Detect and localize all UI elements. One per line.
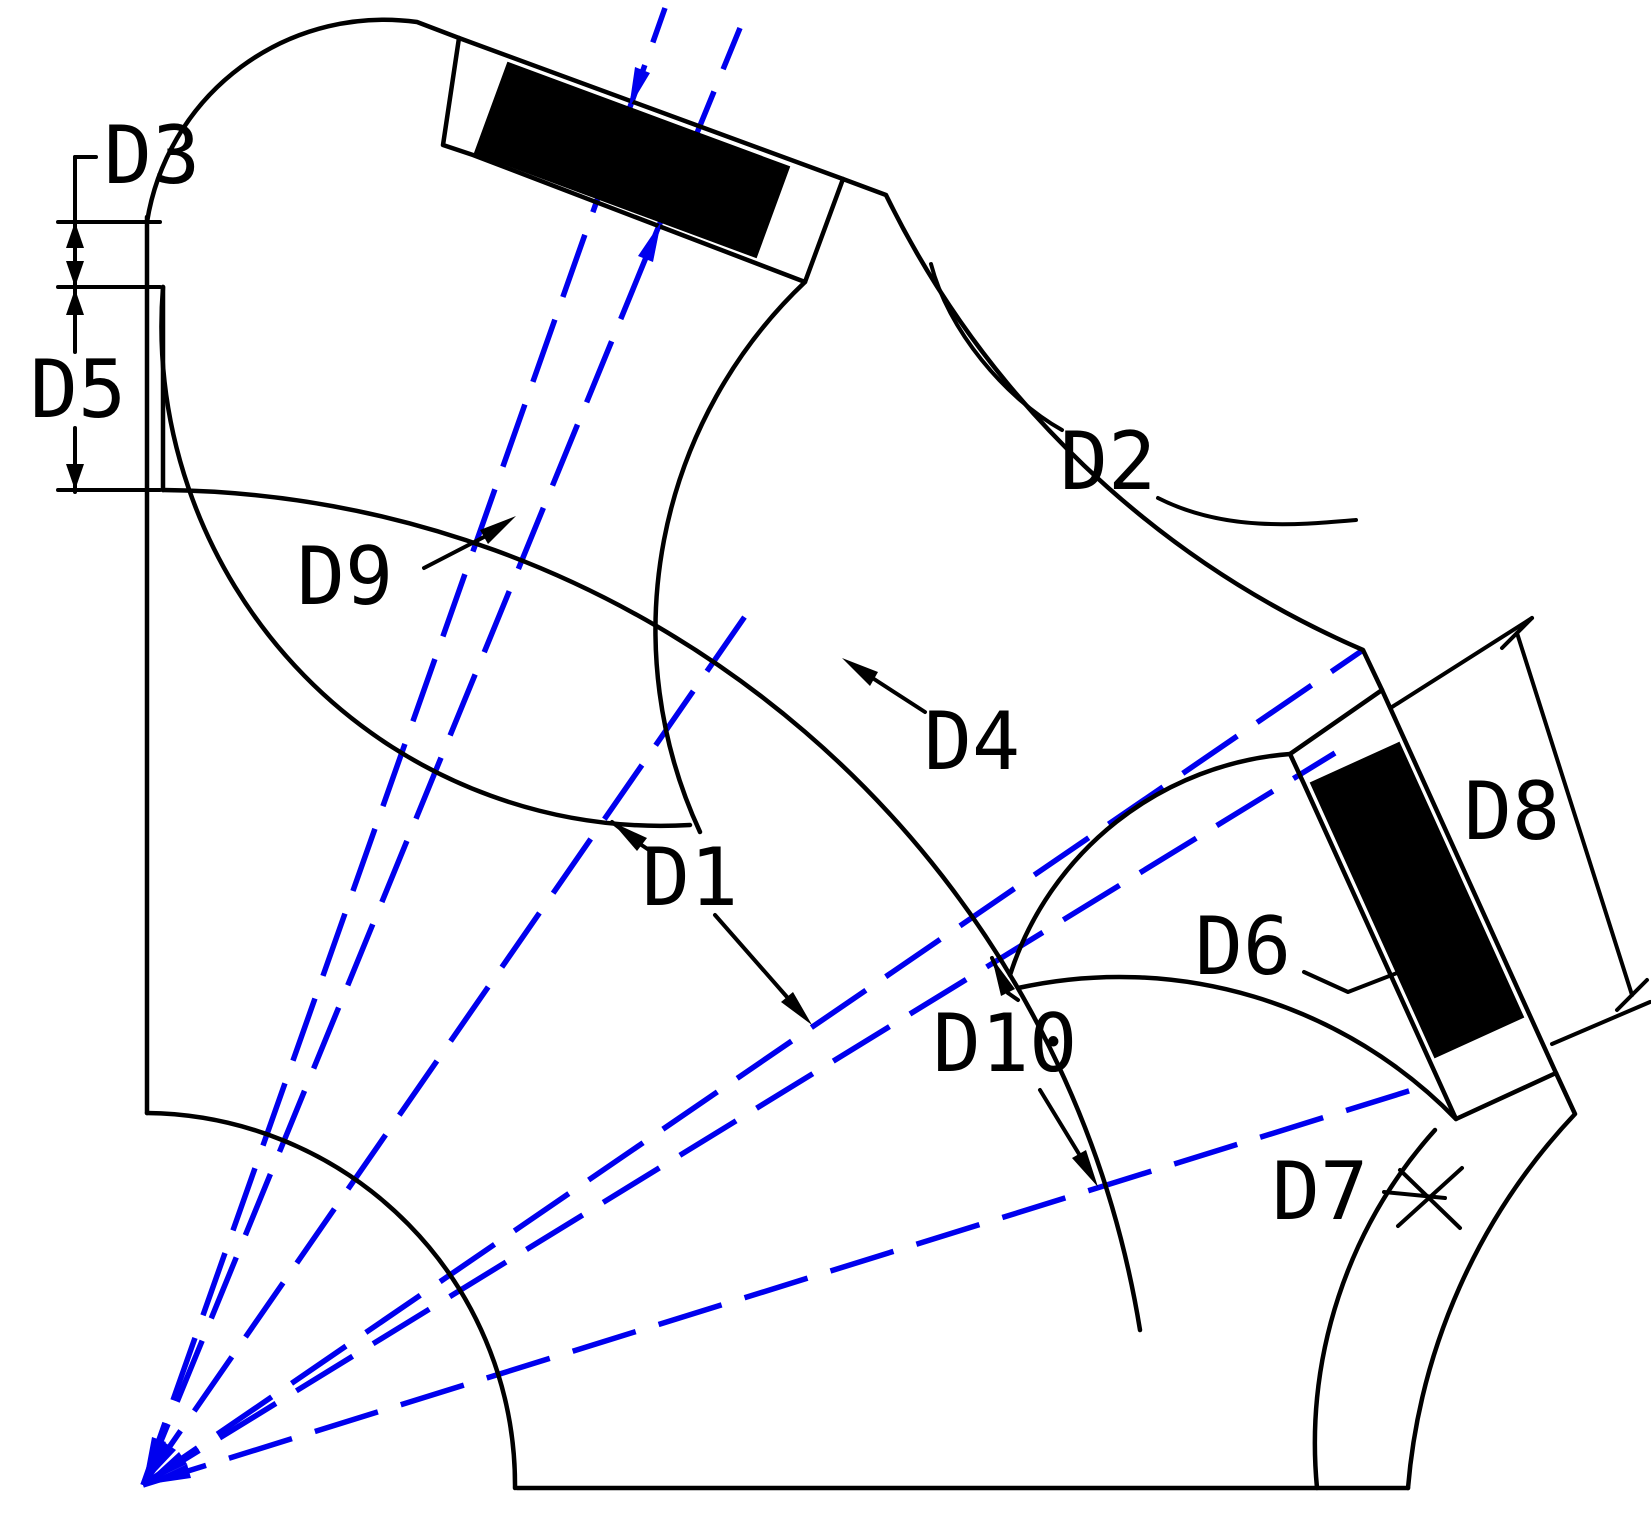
label-d4: D4 xyxy=(924,695,1020,788)
magnet1-inner-face-arrow xyxy=(638,222,661,262)
leader-d4 xyxy=(874,679,925,712)
construction-line-pole-edge-lower xyxy=(143,650,1363,1485)
outer-boundary xyxy=(147,20,1575,1488)
label-d3: D3 xyxy=(104,109,200,202)
dim-arrow-d5-down xyxy=(66,464,84,490)
magnet1-outer-face-arrow xyxy=(629,67,650,108)
construction-lines xyxy=(143,8,1412,1485)
construction-line-magnet2-lower xyxy=(143,1090,1412,1485)
label-d5: D5 xyxy=(30,343,126,436)
barrier1-left-arc xyxy=(161,287,690,826)
bore-arc xyxy=(147,1113,515,1488)
label-d7: D7 xyxy=(1272,1145,1368,1238)
magnets xyxy=(475,63,1523,1057)
construction-line-magnet2-upper xyxy=(143,753,1335,1485)
left-dimension-stack xyxy=(58,157,160,492)
leader-d9 xyxy=(424,537,484,568)
label-d10: D10 xyxy=(933,997,1078,1090)
label-d1: D1 xyxy=(642,831,738,924)
arrow-d4 xyxy=(842,658,878,686)
label-d6: D6 xyxy=(1195,900,1291,993)
lamination-outline xyxy=(147,20,1575,1488)
rotor-cross-section-diagram: D3 D5 D9 D2 D4 D1 D10 D6 D8 D7 xyxy=(0,0,1651,1514)
label-d9: D9 xyxy=(297,530,393,623)
construction-line-pole-edge-upper xyxy=(143,612,748,1485)
dim-arrow-d3-down xyxy=(66,261,84,287)
figure-canvas: D3 D5 D9 D2 D4 D1 D10 D6 D8 D7 xyxy=(0,0,1651,1514)
dim-arrow-d3-up xyxy=(66,222,84,248)
leader-d2-right xyxy=(1158,498,1356,524)
d8-extension-line-2 xyxy=(1552,1002,1650,1044)
d8-extension-line-1 xyxy=(1392,618,1532,707)
leader-d2-left xyxy=(931,264,1062,430)
label-d8: D8 xyxy=(1464,765,1560,858)
label-d2: D2 xyxy=(1060,415,1156,508)
construction-line-magnet1-left xyxy=(143,8,665,1485)
barrier1-right-arc xyxy=(655,282,805,832)
leader-d1-lower xyxy=(715,915,787,997)
dim-arrow-d5-up xyxy=(66,289,84,315)
